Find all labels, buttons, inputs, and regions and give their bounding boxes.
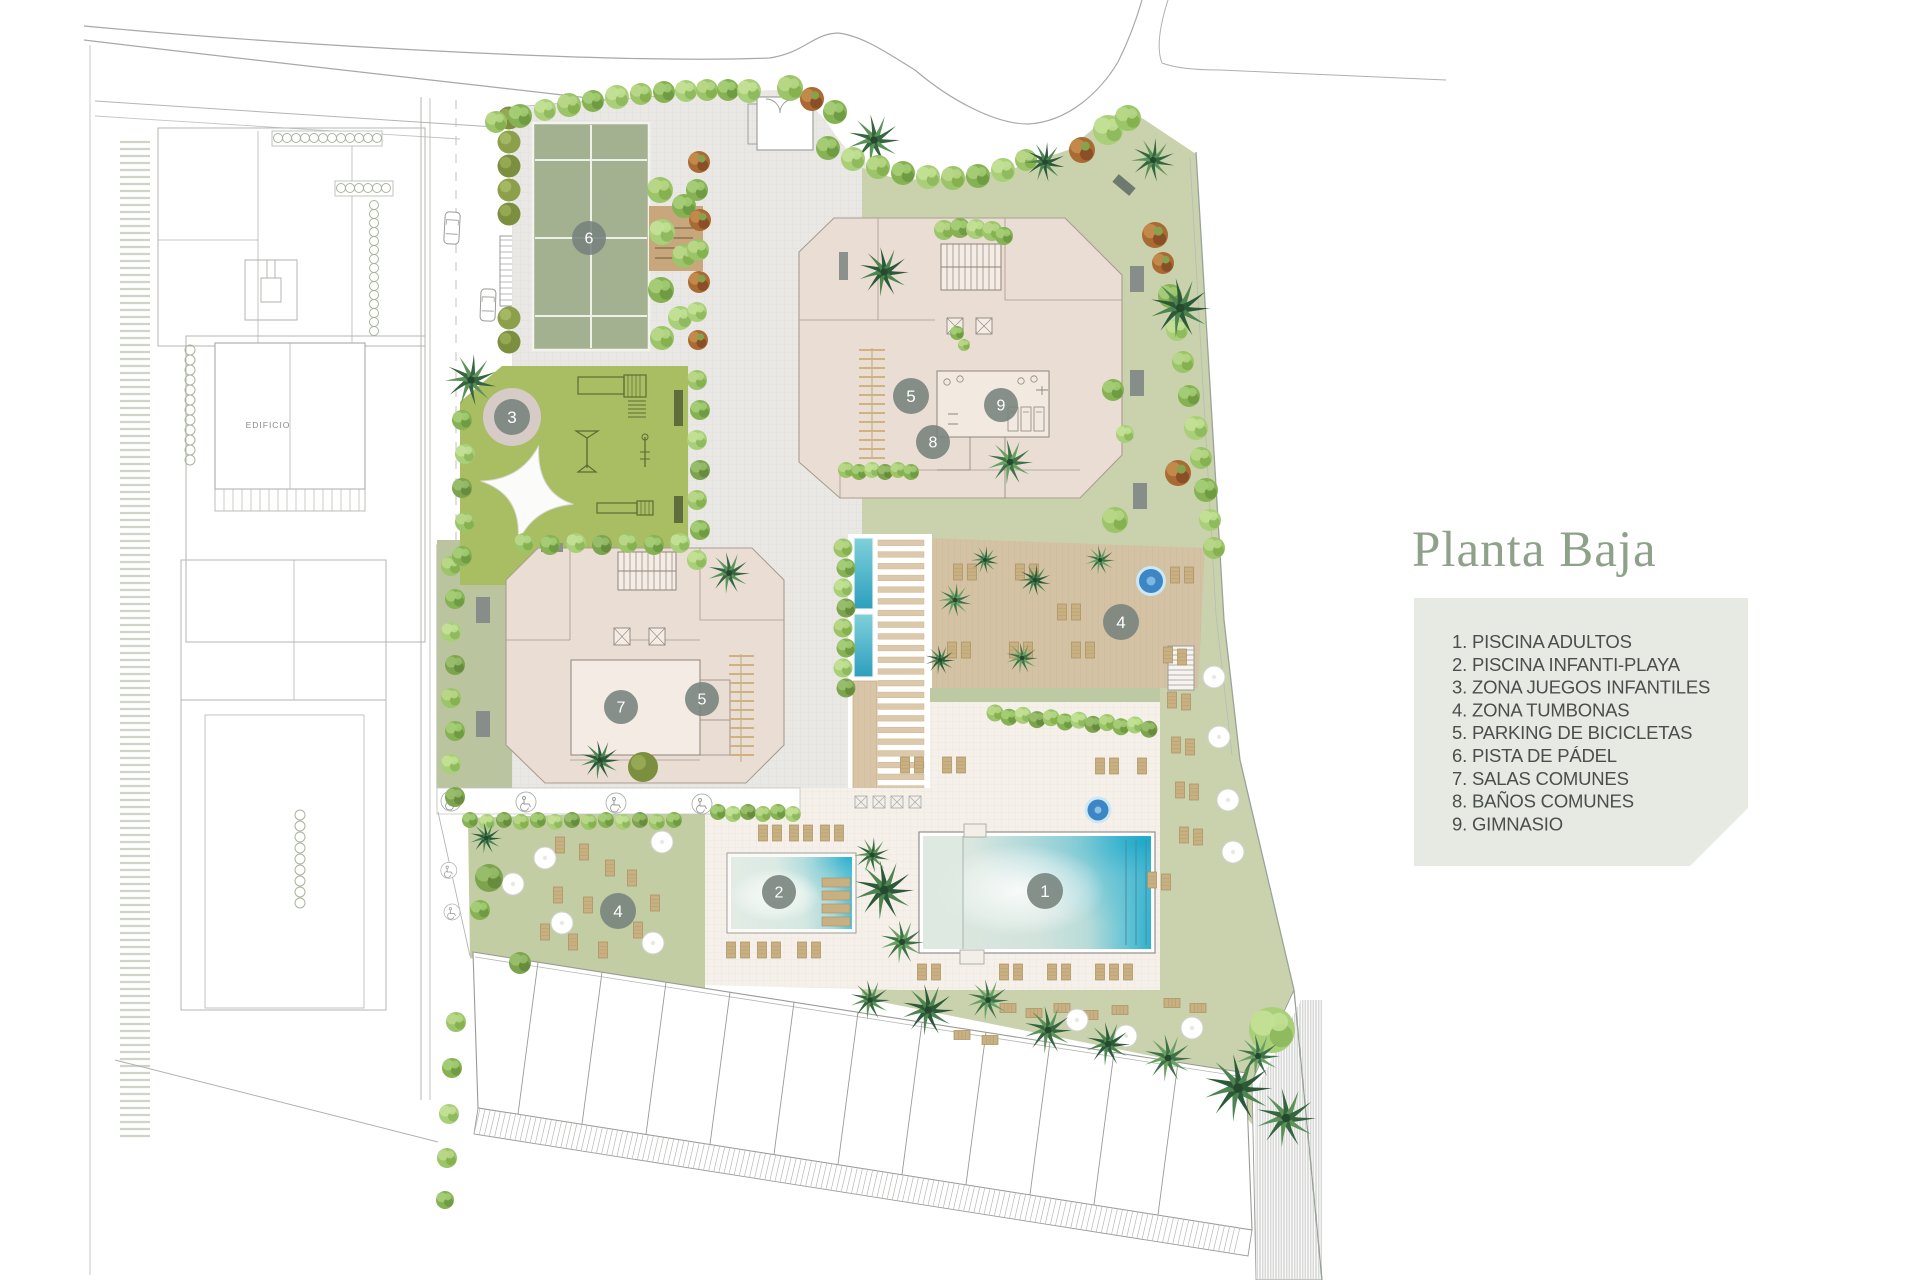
svg-text:4: 4: [1116, 613, 1125, 632]
svg-text:6: 6: [585, 231, 594, 248]
svg-text:5. PARKING DE BICICLETAS: 5. PARKING DE BICICLETAS: [1452, 722, 1692, 743]
svg-text:3: 3: [507, 408, 516, 427]
svg-text:3. ZONA JUEGOS INFANTILES: 3. ZONA JUEGOS INFANTILES: [1452, 677, 1710, 698]
svg-text:7: 7: [617, 700, 626, 717]
svg-text:Planta Baja: Planta Baja: [1412, 522, 1657, 578]
svg-text:7. SALAS COMUNES: 7. SALAS COMUNES: [1452, 768, 1629, 789]
svg-text:8. BAÑOS COMUNES: 8. BAÑOS COMUNES: [1452, 791, 1634, 812]
svg-text:4: 4: [613, 902, 622, 921]
svg-text:4. ZONA TUMBONAS: 4. ZONA TUMBONAS: [1452, 699, 1629, 720]
svg-text:8: 8: [929, 435, 938, 452]
svg-text:5: 5: [698, 692, 707, 709]
svg-text:1: 1: [1040, 882, 1049, 901]
svg-text:2: 2: [775, 885, 784, 902]
svg-text:EDIFICIO: EDIFICIO: [246, 420, 291, 430]
svg-text:1. PISCINA ADULTOS: 1. PISCINA ADULTOS: [1452, 631, 1632, 652]
svg-text:6. PISTA DE PÁDEL: 6. PISTA DE PÁDEL: [1452, 745, 1617, 766]
svg-text:9. GIMNASIO: 9. GIMNASIO: [1452, 813, 1563, 834]
svg-text:9: 9: [997, 398, 1006, 415]
svg-text:5: 5: [906, 387, 915, 406]
svg-text:2. PISCINA INFANTI-PLAYA: 2. PISCINA INFANTI-PLAYA: [1452, 654, 1681, 675]
